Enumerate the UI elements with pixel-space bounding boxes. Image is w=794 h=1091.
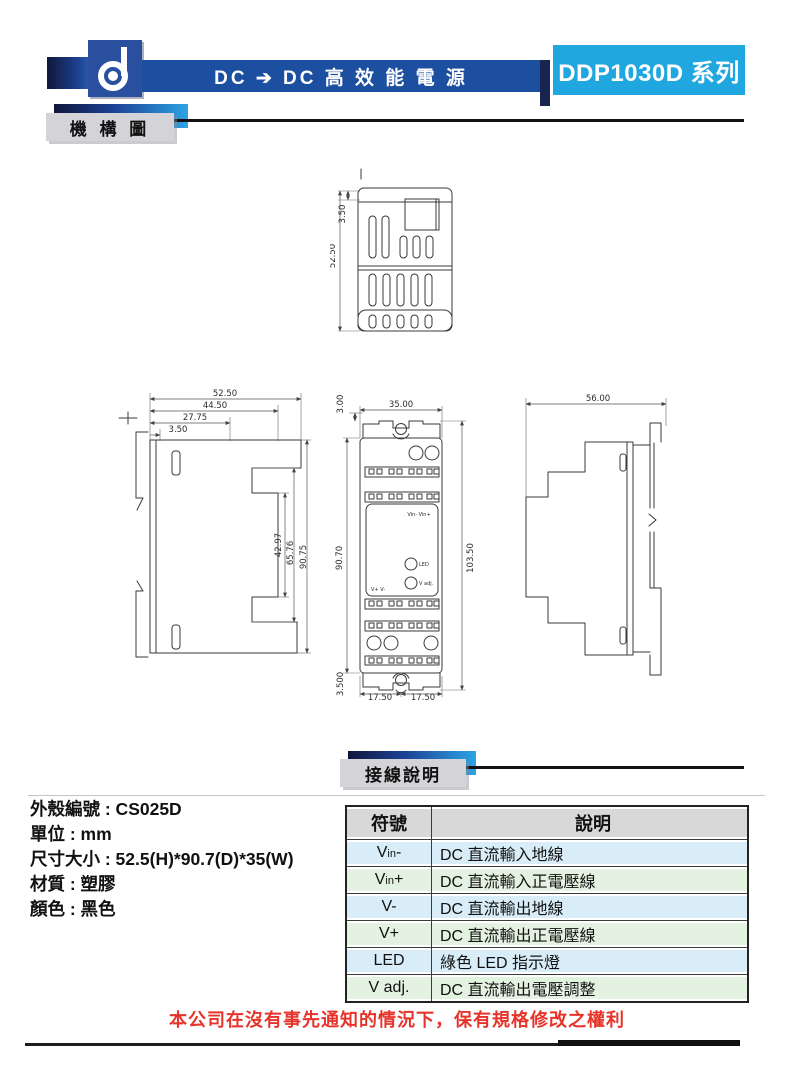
spec-case-number: 外殼編號 : CS025D xyxy=(30,797,294,822)
mechanism-rule-line xyxy=(172,119,744,122)
description-cell: 綠色 LED 指示燈 xyxy=(432,948,749,975)
dim-label: 17.50 xyxy=(368,693,392,700)
dim-label: 3.50 xyxy=(169,425,188,435)
wiring-table: 符號 說明 Vin- DC 直流輸入地線 Vin+ DC 直流輸入正電壓線 V-… xyxy=(345,805,749,1003)
symbol-cell: V adj. xyxy=(346,975,432,1003)
datasheet-page: { "header": { "banner_title": "DC ➔ DC 高… xyxy=(0,0,794,1091)
symbol-cell: Vin- xyxy=(346,840,432,867)
spec-color: 顏色 : 黑色 xyxy=(30,897,294,922)
spec-material: 材質 : 塑膠 xyxy=(30,872,294,897)
spec-unit: 單位 : mm xyxy=(30,822,294,847)
front-view-drawing: 3.00 35.00 Vin- Vin+ LED V adj. V+ V- xyxy=(335,388,485,700)
panel-vadj-label: V adj. xyxy=(419,581,434,587)
symbol-cell: Vin+ xyxy=(346,867,432,894)
description-cell: DC 直流輸出正電壓線 xyxy=(432,921,749,948)
dim-label: 90.75 xyxy=(299,545,309,569)
description-cell: DC 直流輸入地線 xyxy=(432,840,749,867)
table-row: Vin+ DC 直流輸入正電壓線 xyxy=(346,867,748,894)
series-edge-block xyxy=(540,60,550,106)
panel-led-label: LED xyxy=(419,562,429,568)
spec-dimensions: 尺寸大小 : 52.5(H)*90.7(D)*35(W) xyxy=(30,847,294,872)
table-row: V- DC 直流輸出地線 xyxy=(346,894,748,921)
dim-label: 27.75 xyxy=(183,413,207,423)
table-row: V adj. DC 直流輸出電壓調整 xyxy=(346,975,748,1003)
header-corner-block xyxy=(47,57,90,89)
dim-label: 65.76 xyxy=(286,541,296,565)
brand-logo xyxy=(88,40,142,97)
dim-label: 3.00 xyxy=(336,395,346,414)
series-banner: DDP1030D 系列 xyxy=(553,45,745,95)
d-logo-icon xyxy=(88,40,142,97)
mechanism-section-text: 機 構 圖 xyxy=(70,115,150,140)
symbol-cell: LED xyxy=(346,948,432,975)
table-row: Vin- DC 直流輸入地線 xyxy=(346,840,748,867)
wiring-section-text: 接線說明 xyxy=(365,761,441,786)
symbol-header: 符號 xyxy=(346,806,432,840)
disclaimer-notice: 本公司在沒有事先通知的情況下，保有規格修改之權利 xyxy=(0,1006,794,1032)
mechanism-section-label: 機 構 圖 xyxy=(46,113,174,141)
wiring-rule-line xyxy=(466,766,744,769)
footer-line-thin xyxy=(25,1043,560,1046)
dim-label: 42.97 xyxy=(274,533,284,557)
description-cell: DC 直流輸入正電壓線 xyxy=(432,867,749,894)
description-cell: DC 直流輸出地線 xyxy=(432,894,749,921)
dim-label: 3.50 xyxy=(338,205,348,224)
description-header: 說明 xyxy=(432,806,749,840)
dim-label: 56.00 xyxy=(586,394,610,404)
symbol-cell: V- xyxy=(346,894,432,921)
dim-label: 52.50 xyxy=(330,244,338,268)
wiring-section-label: 接線說明 xyxy=(340,759,466,787)
dim-label: 52.50 xyxy=(213,389,237,399)
description-cell: DC 直流輸出電壓調整 xyxy=(432,975,749,1003)
table-header-row: 符號 說明 xyxy=(346,806,748,840)
section-divider-line xyxy=(28,795,765,796)
series-badge: DDP1030D 系列 xyxy=(558,53,740,88)
dim-label: 3.500 xyxy=(336,672,346,696)
right-side-view-drawing: 56.00 xyxy=(518,390,703,690)
left-side-view-drawing: 52.50 44.50 27.75 3.50 42.97 65.76 90.75 xyxy=(115,385,325,685)
banner-title: DC ➔ DC 高 效 能 電 源 xyxy=(214,63,468,90)
symbol-cell: V+ xyxy=(346,921,432,948)
dim-label: 90.70 xyxy=(335,546,345,570)
spec-list: 外殼編號 : CS025D 單位 : mm 尺寸大小 : 52.5(H)*90.… xyxy=(30,797,294,922)
table-row: LED 綠色 LED 指示燈 xyxy=(346,948,748,975)
panel-output-label: V+ V- xyxy=(371,587,385,593)
dim-label: 103.50 xyxy=(466,543,476,573)
top-view-drawing: 3.50 52.50 xyxy=(330,166,460,334)
panel-input-label: Vin- Vin+ xyxy=(407,512,430,518)
dim-label: 17.50 xyxy=(411,693,435,700)
table-row: V+ DC 直流輸出正電壓線 xyxy=(346,921,748,948)
footer-line-thick xyxy=(558,1040,740,1046)
dim-label: 44.50 xyxy=(203,401,227,411)
dim-label: 35.00 xyxy=(389,400,413,410)
main-banner: DC ➔ DC 高 效 能 電 源 xyxy=(142,60,540,92)
